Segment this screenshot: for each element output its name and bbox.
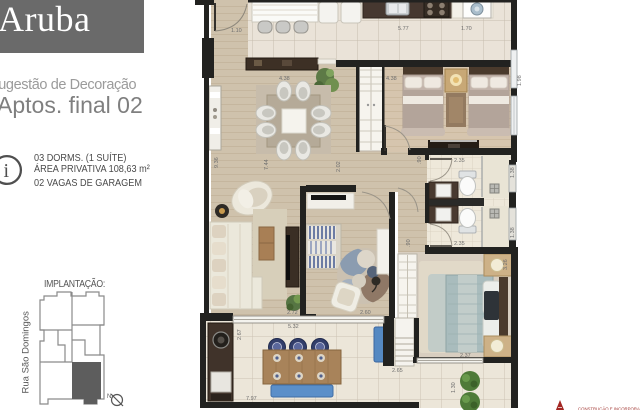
svg-text:2.35: 2.35 bbox=[454, 241, 465, 247]
svg-text:1.98: 1.98 bbox=[517, 75, 523, 86]
svg-text:1.10: 1.10 bbox=[231, 28, 242, 34]
svg-text:2.60: 2.60 bbox=[360, 310, 371, 316]
svg-text:.90: .90 bbox=[417, 156, 423, 164]
svg-text:CONSTRUÇÃO E INCORPORA: CONSTRUÇÃO E INCORPORA bbox=[578, 407, 640, 410]
svg-text:i: i bbox=[4, 160, 10, 182]
svg-text:7.97: 7.97 bbox=[246, 396, 257, 402]
svg-text:2.02: 2.02 bbox=[336, 161, 342, 172]
svg-text:4.38: 4.38 bbox=[386, 76, 397, 82]
svg-text:1.38: 1.38 bbox=[510, 227, 516, 238]
svg-text:7.44: 7.44 bbox=[264, 159, 270, 170]
svg-text:3.26: 3.26 bbox=[503, 259, 509, 270]
svg-text:5.32: 5.32 bbox=[288, 324, 299, 330]
svg-text:1.38: 1.38 bbox=[510, 167, 516, 178]
svg-text:1.70: 1.70 bbox=[461, 26, 472, 32]
svg-text:.90: .90 bbox=[406, 239, 412, 247]
svg-text:5.77: 5.77 bbox=[398, 26, 409, 32]
svg-text:2.65: 2.65 bbox=[392, 368, 403, 374]
svg-text:2.35: 2.35 bbox=[454, 158, 465, 164]
svg-text:9.36: 9.36 bbox=[214, 157, 220, 168]
svg-text:4.38: 4.38 bbox=[279, 76, 290, 82]
svg-text:2.72: 2.72 bbox=[287, 310, 298, 316]
svg-text:2.67: 2.67 bbox=[237, 329, 243, 340]
svg-text:N: N bbox=[107, 394, 111, 400]
svg-text:2.37: 2.37 bbox=[460, 353, 471, 359]
svg-text:1.30: 1.30 bbox=[451, 382, 457, 393]
